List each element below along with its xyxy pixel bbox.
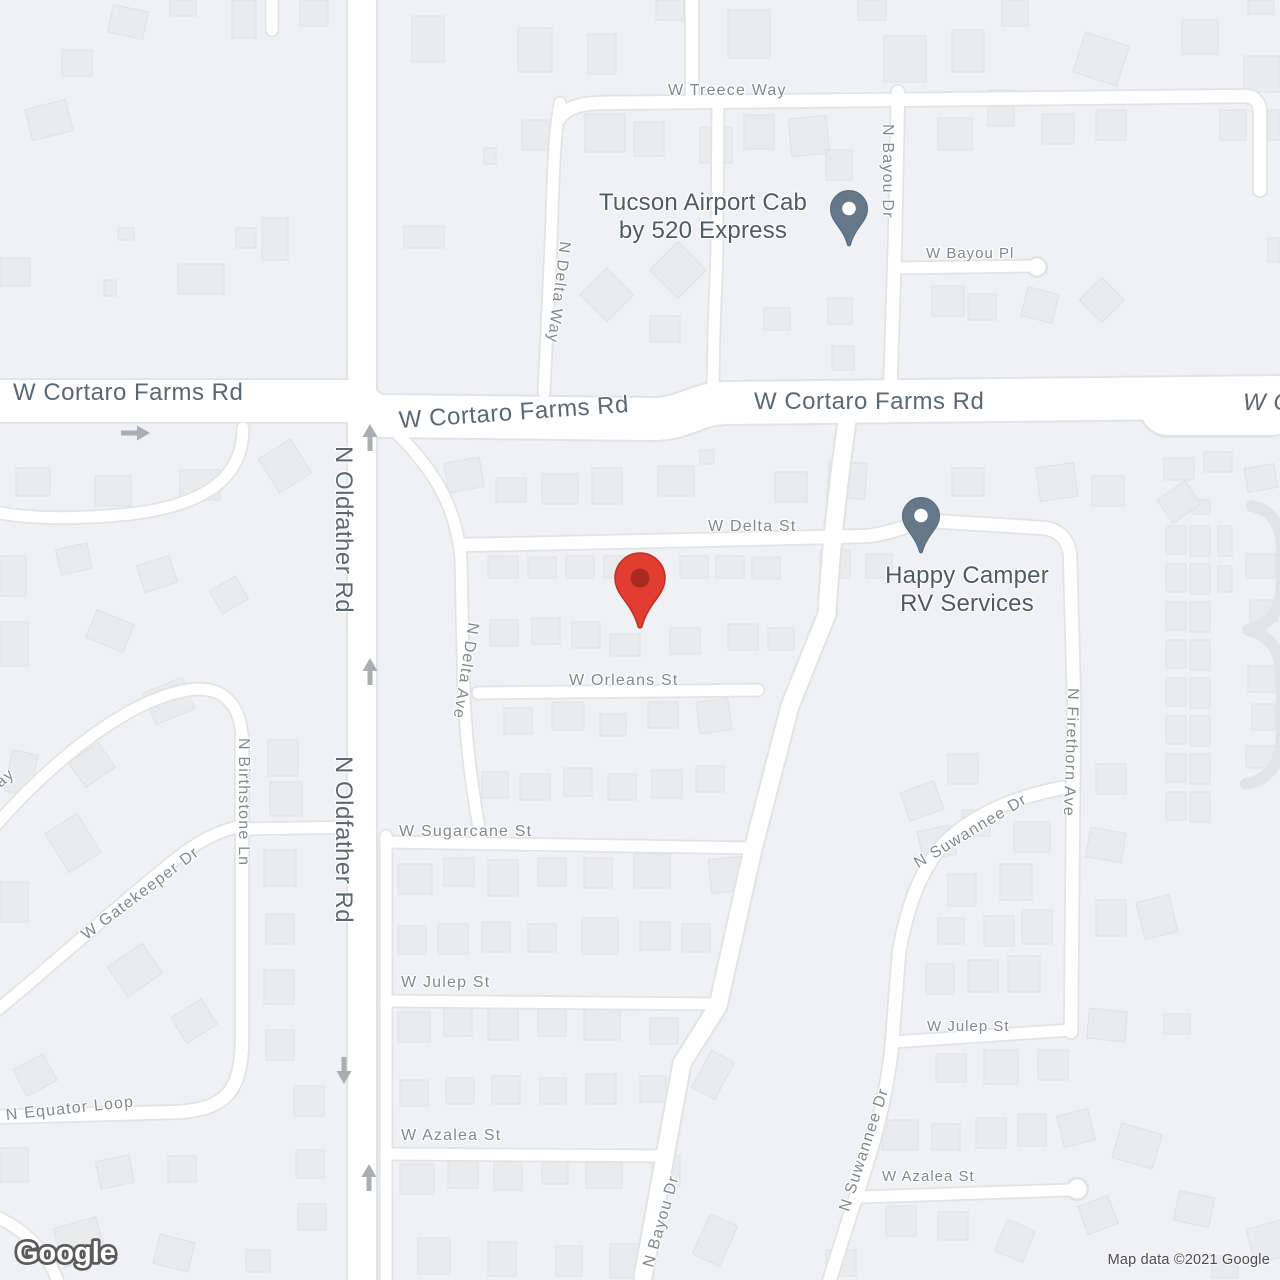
street-label-bayou-dr-north: N Bayou Dr	[878, 124, 896, 219]
map-attribution: Map data ©2021 Google	[1108, 1252, 1270, 1268]
poi-label-line: RV Services	[900, 590, 1034, 617]
poi-pin-tucson-cab-icon[interactable]	[829, 189, 869, 247]
street-label-azalea-st-west: W Azalea St	[401, 1127, 501, 1145]
poi-label-line: by 520 Express	[619, 217, 787, 244]
street-label-julep-st-east: W Julep St	[927, 1018, 1010, 1035]
street-label-cortaro-west: W Cortaro Farms Rd	[13, 379, 243, 407]
street-label-birthstone-ln: N Birthstone Ln	[234, 738, 252, 866]
street-label-julep-st-west: W Julep St	[401, 974, 490, 992]
street-label-treece-way: W Treece Way	[668, 82, 787, 100]
street-label-cortaro-east: W Cortaro Farms Rd	[754, 388, 984, 416]
street-label-delta-st: W Delta St	[708, 518, 796, 536]
map-canvas[interactable]: W Treece Way N Bayou Dr W Bayou Pl N Del…	[0, 0, 1280, 1280]
destination-pin-icon[interactable]	[613, 551, 667, 639]
street-label-oldfather-upper: N Oldfather Rd	[329, 446, 357, 613]
street-label-oldfather-lower: N Oldfather Rd	[329, 756, 357, 923]
poi-label-tucson-airport-cab[interactable]: Tucson Airport Cab by 520 Express	[575, 189, 831, 245]
street-label-azalea-st-east: W Azalea St	[882, 1168, 975, 1185]
street-label-sugarcane-st: W Sugarcane St	[399, 823, 532, 841]
google-logo-text: Google	[16, 1237, 116, 1269]
street-label-bayou-pl: W Bayou Pl	[926, 245, 1014, 262]
poi-label-line: Tucson Airport Cab	[599, 189, 807, 216]
poi-label-happy-camper[interactable]: Happy Camper RV Services	[867, 562, 1067, 618]
google-logo[interactable]: Google	[12, 1230, 152, 1274]
poi-pin-happy-camper-icon[interactable]	[901, 496, 941, 554]
street-label-cortaro-cut: W C	[1243, 389, 1280, 417]
street-label-orleans-st: W Orleans St	[569, 672, 679, 690]
poi-label-line: Happy Camper	[885, 562, 1049, 589]
